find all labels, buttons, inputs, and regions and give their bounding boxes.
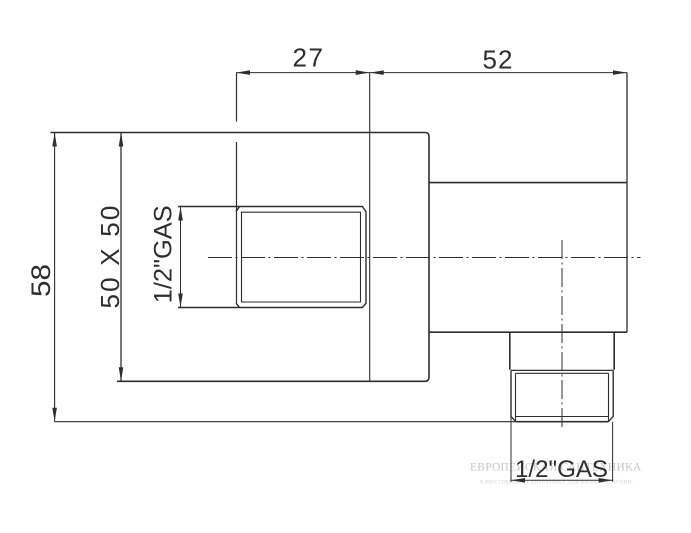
svg-text:52: 52 [483, 45, 514, 75]
svg-text:1/2"GAS: 1/2"GAS [149, 205, 177, 303]
svg-text:1/2"GAS: 1/2"GAS [515, 456, 608, 483]
svg-text:50 X 50: 50 X 50 [95, 203, 125, 308]
svg-text:27: 27 [293, 43, 325, 73]
svg-text:58: 58 [26, 264, 56, 297]
